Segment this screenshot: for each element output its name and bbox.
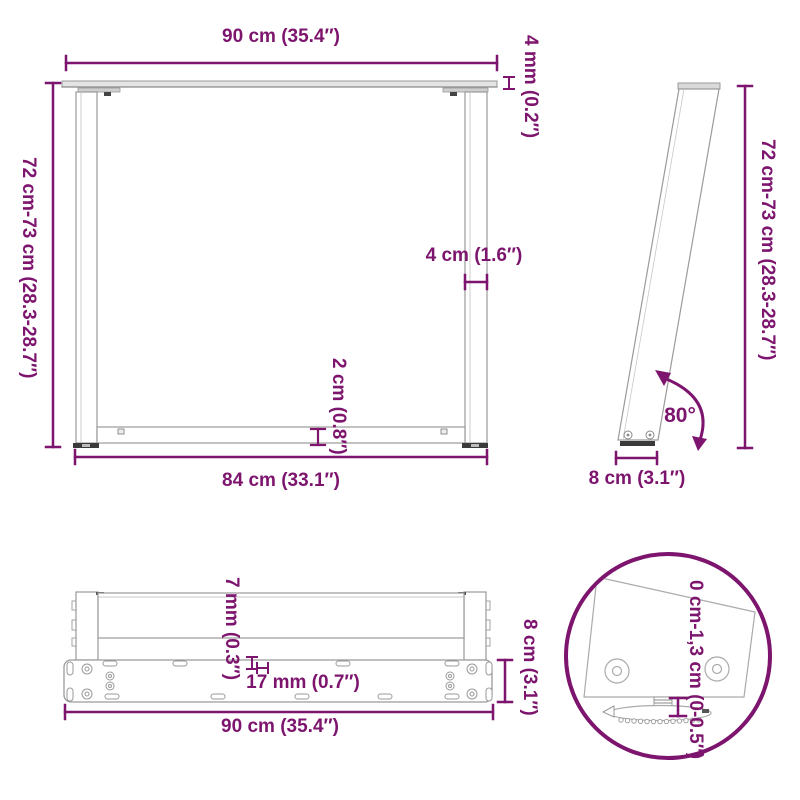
side-foot (620, 441, 655, 446)
label-side-foot: 8 cm (3.1″) (557, 467, 717, 491)
label-front-width-bottom: 84 cm (33.1″) (131, 469, 431, 493)
label-plan-slot: 17 mm (0.7″) (203, 671, 403, 695)
label-front-leg-width: 4 cm (1.6″) (374, 244, 574, 268)
dim-front-width-bottom (75, 450, 487, 464)
slanted-leg (618, 89, 719, 440)
dim-side-foot (616, 452, 657, 464)
label-front-height: 72 cm-73 cm (28.3-28.7″) (15, 148, 41, 388)
label-front-crossbar: 2 cm (0.8″) (325, 358, 351, 454)
dim-front-width-top (66, 56, 497, 70)
screw-icon (104, 92, 111, 96)
dimension-diagram: 90 cm (35.4″) 4 mm (0.2″) 72 cm-73 cm (2… (0, 0, 800, 800)
dim-front-thickness (504, 77, 514, 89)
side-view (618, 83, 720, 446)
dim-side-height (738, 86, 752, 448)
label-front-thickness: 4 mm (0.2″) (517, 20, 543, 154)
dim-plan-depth (498, 660, 512, 702)
crossbar (97, 427, 465, 443)
label-side-height: 72 cm-73 cm (28.3-28.7″) (754, 130, 780, 370)
dim-front-height (46, 83, 60, 447)
left-leg (76, 92, 97, 443)
label-side-angle: 80° (650, 404, 710, 428)
label-plan-hole: 7 mm (0.3″) (218, 577, 244, 679)
label-plan-width: 90 cm (35.4″) (130, 715, 430, 739)
beam (98, 593, 464, 638)
tabletop (62, 81, 497, 87)
detail-view (566, 554, 770, 758)
label-plan-depth: 8 cm (3.1″) (516, 616, 542, 718)
left-post (76, 592, 98, 660)
label-detail-adjust: 0 cm-1,3 cm (0-0.5″) (682, 580, 708, 744)
label-front-width-top: 90 cm (35.4″) (131, 25, 431, 49)
screw-icon (450, 92, 457, 96)
right-post (464, 592, 486, 660)
